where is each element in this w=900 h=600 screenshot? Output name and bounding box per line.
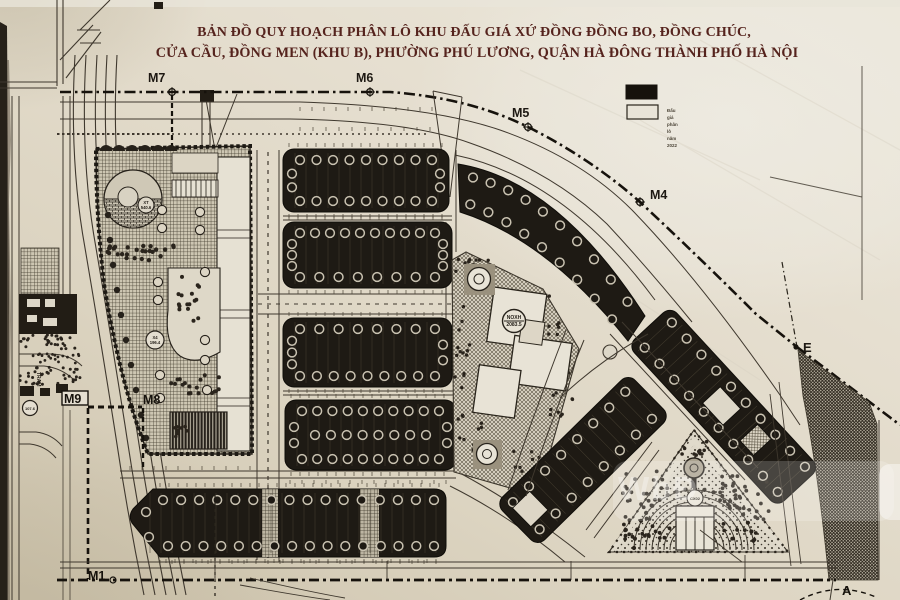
svg-text:M5: M5 xyxy=(512,106,529,120)
svg-text:M4: M4 xyxy=(650,188,667,202)
svg-text:2022: 2022 xyxy=(667,143,678,148)
svg-text:A: A xyxy=(842,583,852,598)
svg-text:BẢN ĐỒ QUY HOẠCH PHÂN LÔ KHU Đ: BẢN ĐỒ QUY HOẠCH PHÂN LÔ KHU ĐẤU GIÁ XỨ … xyxy=(197,22,751,40)
svg-text:NOXH: NOXH xyxy=(507,315,522,321)
svg-text:M8: M8 xyxy=(143,393,160,407)
svg-text:E: E xyxy=(803,340,812,355)
svg-text:lô: lô xyxy=(667,129,671,134)
svg-text:giá: giá xyxy=(667,115,674,120)
svg-text:M7: M7 xyxy=(148,71,165,85)
svg-text:TRAM: TRAM xyxy=(35,372,41,386)
svg-text:Đấu: Đấu xyxy=(667,107,676,113)
svg-text:M6: M6 xyxy=(356,71,373,85)
svg-text:540.6: 540.6 xyxy=(141,205,152,210)
svg-text:M9: M9 xyxy=(64,392,81,406)
svg-text:107.6: 107.6 xyxy=(25,406,36,411)
svg-text:2083.5: 2083.5 xyxy=(506,322,522,328)
svg-text:M1: M1 xyxy=(88,569,105,583)
svg-text:năm: năm xyxy=(667,136,676,141)
svg-text:CỬA CẦU, ĐỒNG MEN (KHU B), PHƯ: CỬA CẦU, ĐỒNG MEN (KHU B), PHƯỜNG PHÚ LƯ… xyxy=(156,43,799,61)
svg-text:196.4: 196.4 xyxy=(150,340,161,345)
svg-text:phân: phân xyxy=(667,122,678,127)
svg-text:WbĐ: WbĐ xyxy=(618,470,699,507)
